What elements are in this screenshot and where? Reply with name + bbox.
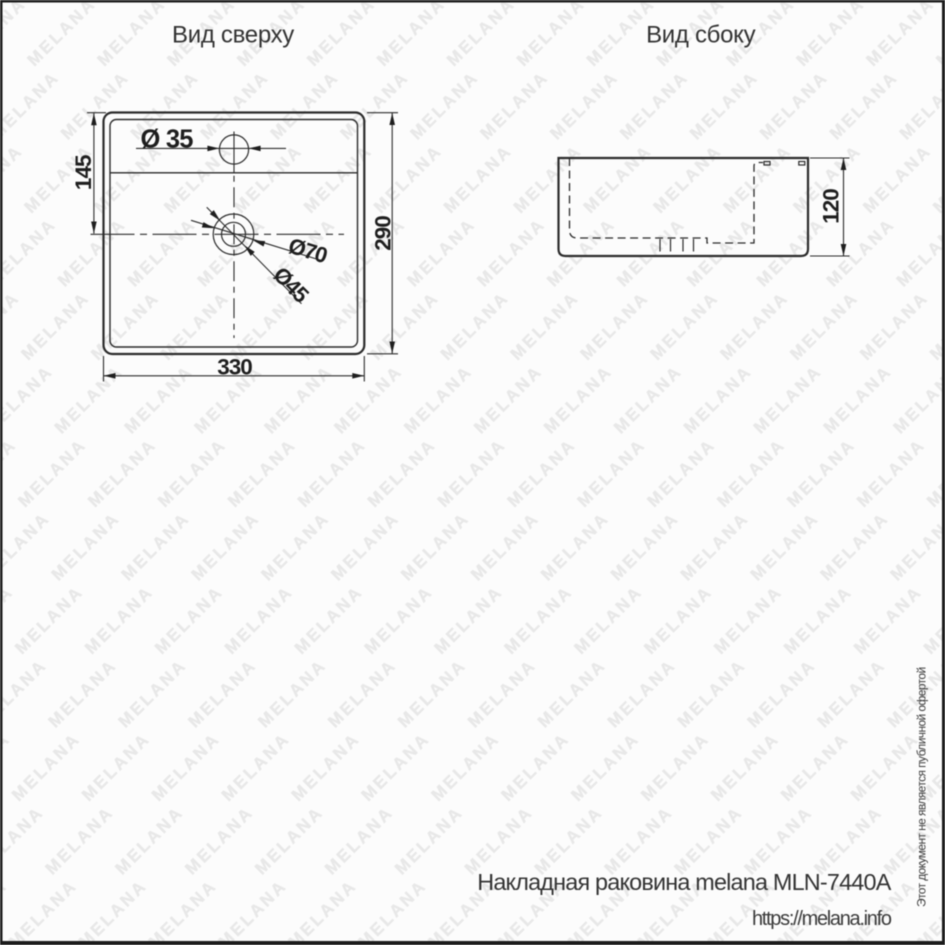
- svg-text:https://melana.info: https://melana.info: [752, 908, 892, 930]
- svg-text:145: 145: [71, 155, 96, 190]
- svg-text:Вид сбоку: Вид сбоку: [646, 22, 756, 49]
- svg-text:Накладная раковина melana MLN-: Накладная раковина melana MLN-7440A: [477, 869, 891, 895]
- svg-text:120: 120: [819, 189, 844, 224]
- svg-text:Вид сверху: Вид сверху: [172, 22, 294, 49]
- svg-text:290: 290: [371, 216, 396, 251]
- svg-text:330: 330: [217, 354, 252, 379]
- svg-text:Этот документ не является публ: Этот документ не является публичной офер…: [915, 667, 929, 907]
- svg-text:Ø 35: Ø 35: [141, 126, 194, 154]
